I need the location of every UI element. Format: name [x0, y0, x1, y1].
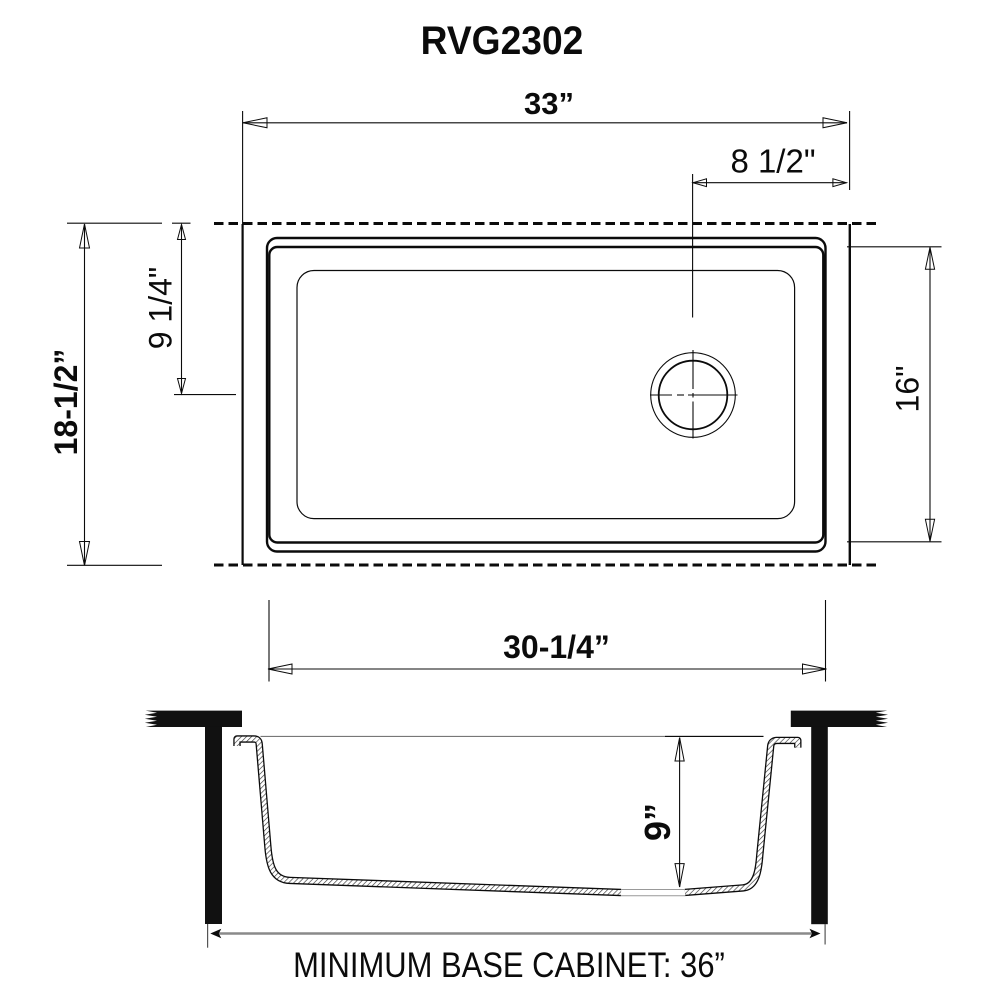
svg-text:MINIMUM BASE CABINET: 36”: MINIMUM BASE CABINET: 36” — [293, 946, 725, 985]
svg-text:8 1/2": 8 1/2" — [730, 143, 815, 180]
svg-text:16": 16" — [890, 366, 926, 413]
svg-text:9”: 9” — [637, 803, 678, 841]
svg-text:18-1/2”: 18-1/2” — [48, 349, 84, 456]
svg-text:RVG2302: RVG2302 — [421, 19, 584, 64]
svg-text:30-1/4”: 30-1/4” — [503, 629, 610, 665]
svg-text:33”: 33” — [524, 86, 574, 121]
svg-text:9 1/4": 9 1/4" — [143, 267, 179, 350]
